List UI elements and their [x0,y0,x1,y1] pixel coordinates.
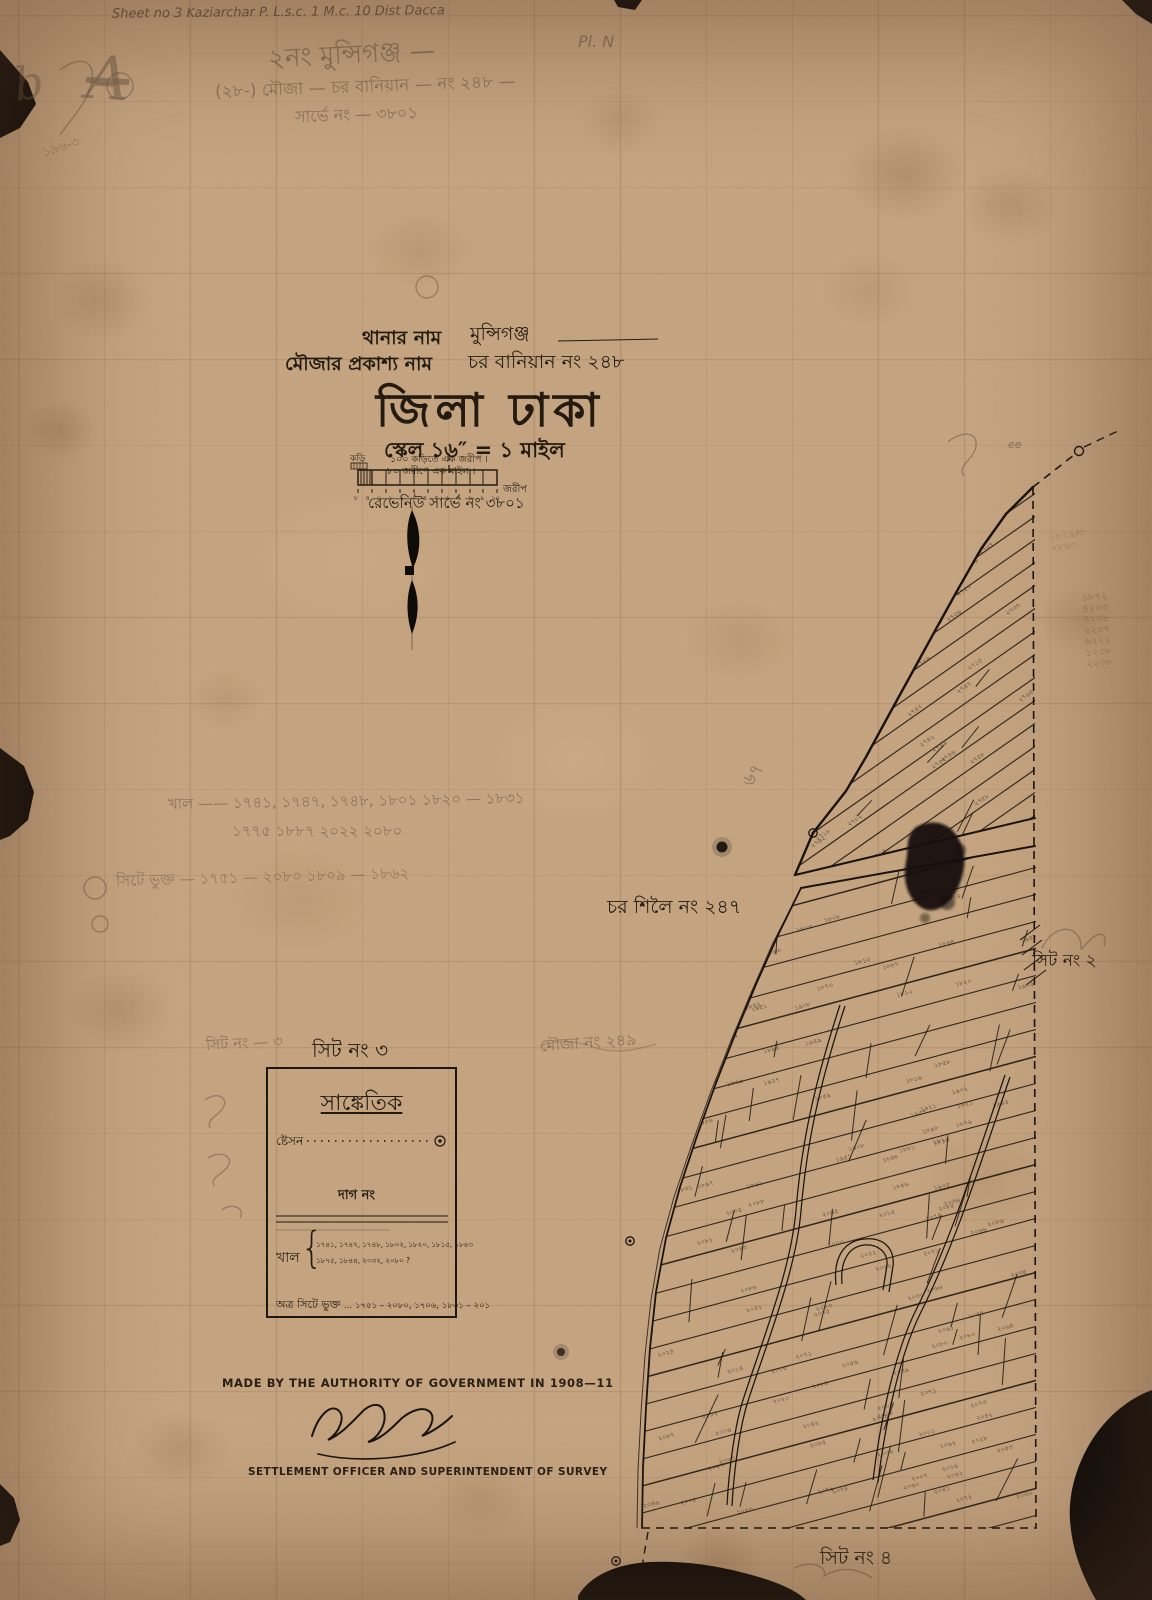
legend-title: সাঙ্কেতিক [267,1086,456,1123]
scale-note-2: ৮০ জরীপে এক মাইল । [387,465,475,480]
legend-dag-label: দাগ নং [338,1186,375,1207]
sheet-2-label: সিট নং ২ [1032,948,1097,976]
list-item: ২২০৮ [1086,657,1113,670]
legend-khal-values-2: ১৮৭৫, ১৮৪৪, ২০৩২, ২০৮০ ? [316,1256,410,1268]
list-item: ৮ [354,493,358,504]
pencil-sheet3-note: সিট নং — ৩ [205,1030,283,1059]
pencil-pl-note: Pl. N [578,32,614,51]
legend-station-label: ষ্টেসন [276,1133,303,1153]
map-sheet-paper: ২৭১৬২৭০২২৭৬২২৭৪৭২৭০৫২৭৫৭২৭২৫২৭১৮২৭২৩২৭৫৮… [0,0,1152,1600]
sheet-3-label: সিট নং ৩ [312,1036,388,1069]
legend-included-values: … ১৭৫১ – ২০৮০, ১৭০৬, ১৮৩১ – ২০১ [344,1301,490,1311]
scale-left-unit: কড়ি [350,451,365,466]
revenue-survey-no: রেভেনিউ সার্ভে নং ৩৮০১ [368,492,525,517]
legend-khal-label: খাল [276,1246,300,1270]
authority-line: MADE BY THE AUTHORITY OF GOVERNMENT IN 1… [222,1376,614,1390]
legend-khal-values-1: ১৭৪১, ১৭৪৭, ১৭৪৮, ১৮০২, ১৮২০, ১৮১৫, ১৮৪৩ [316,1240,473,1252]
pencil-monogram: A [84,43,131,115]
pencil-right-number-column: ১৮৭২৪২০৩৪২০৮২২৩৭৬২২২১২৩৮২২০৮ [1081,591,1112,670]
legend-included-label: অত্র সিটে ভুক্ত [276,1298,340,1311]
pencil-ee-note: ee [1008,438,1022,451]
char-shiloi-label: চর শিলৈ নং ২৪৭ [607,893,741,925]
legend-included-row: অত্র সিটে ভুক্ত … ১৭৫১ – ২০৮০, ১৭০৬, ১৮৩… [276,1296,490,1315]
pencil-khal-row-2: ১৭৭৫ ১৮৮৭ ২০২২ ২০৮০ [232,820,402,845]
office-line: SETTLEMENT OFFICER AND SUPERINTENDENT OF… [248,1466,607,1478]
sheet-4-label: সিট নং ৪ [820,1544,892,1576]
pencil-survey-line: সার্ভে নং — ৩৮০১ [295,100,419,131]
